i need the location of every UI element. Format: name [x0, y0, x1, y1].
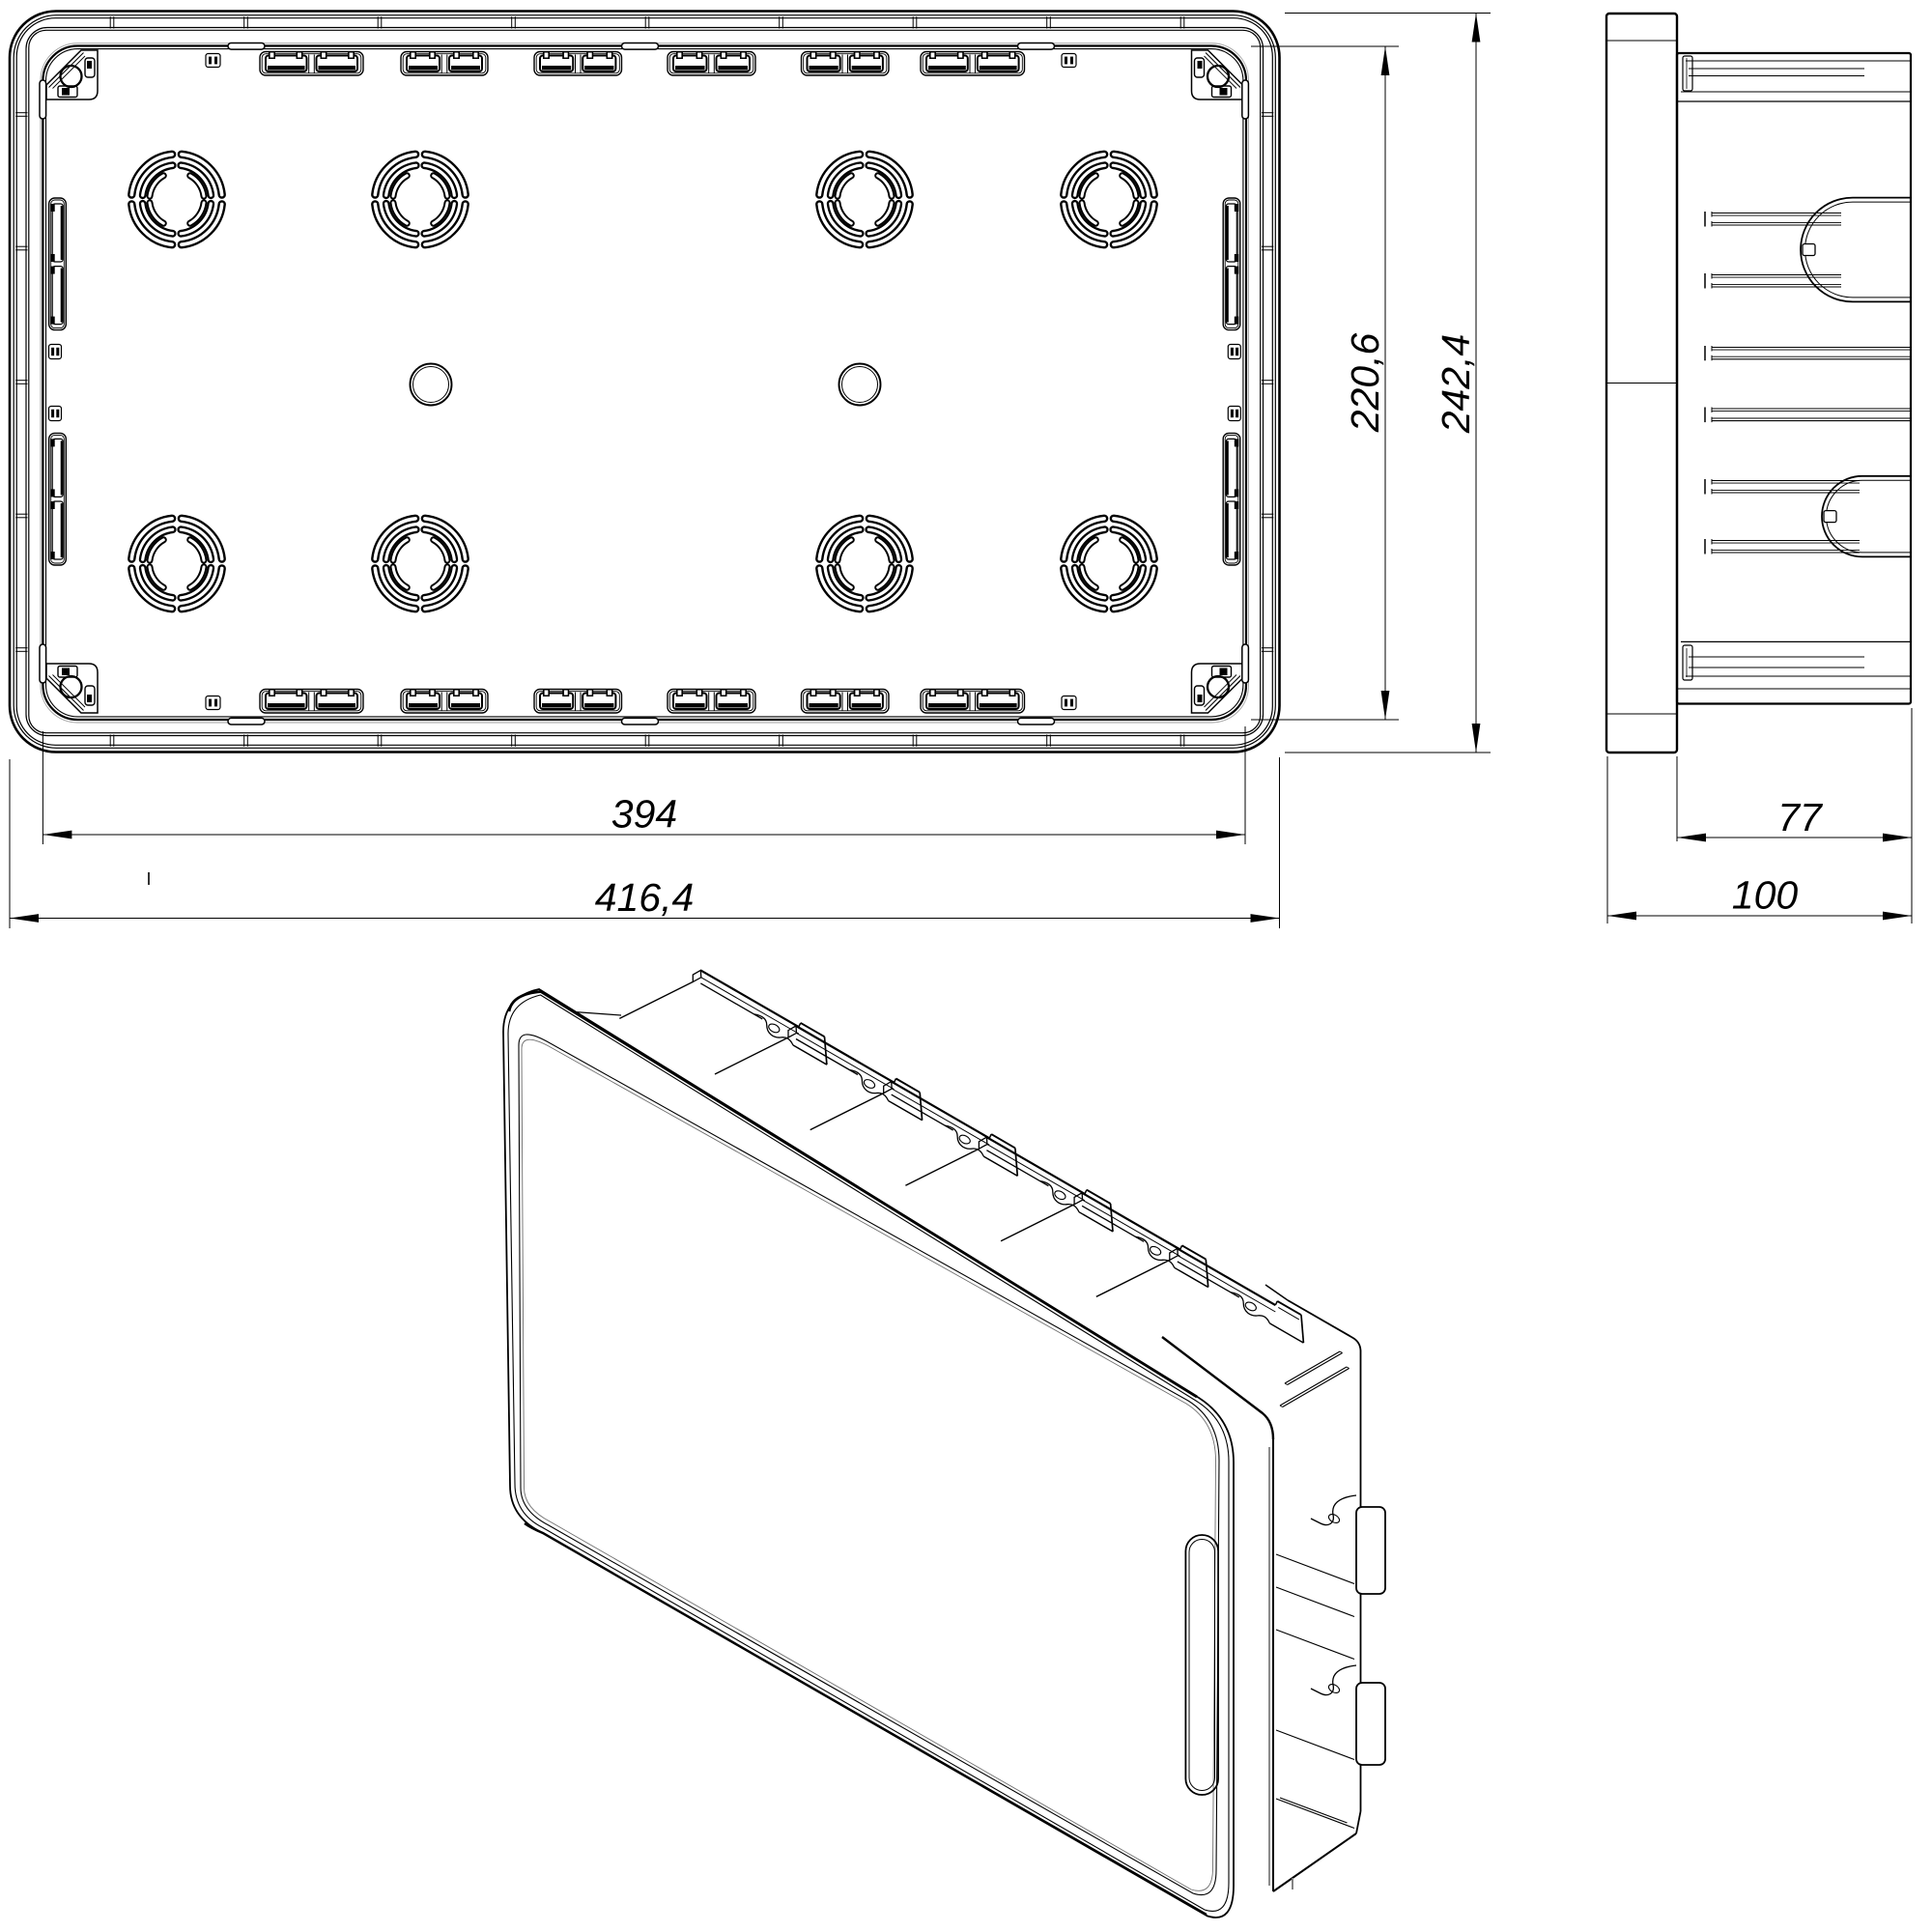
- svg-text:242,4: 242,4: [1434, 334, 1478, 435]
- svg-text:220,6: 220,6: [1343, 333, 1387, 434]
- svg-text:416,4: 416,4: [595, 875, 695, 920]
- svg-text:77: 77: [1777, 795, 1824, 839]
- svg-text:394: 394: [611, 792, 677, 837]
- svg-text:100: 100: [1732, 873, 1799, 918]
